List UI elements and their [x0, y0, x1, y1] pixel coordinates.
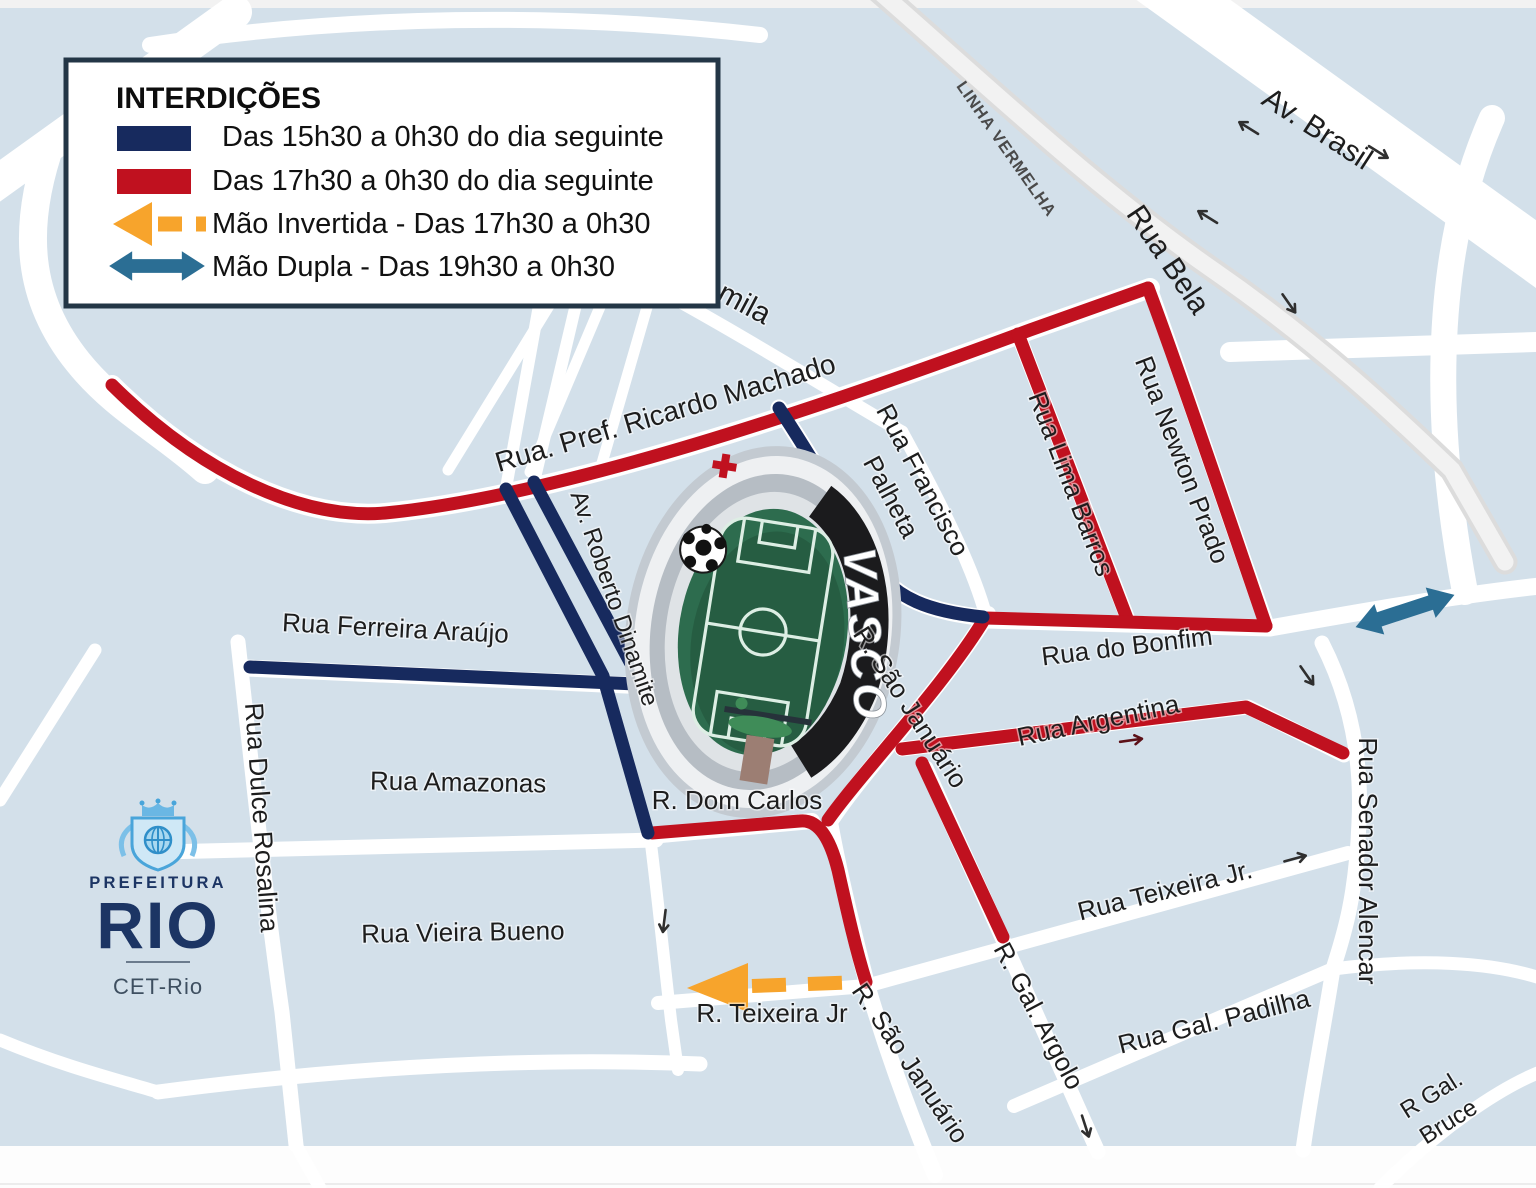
legend-item-label: Mão Invertida - Das 17h30 a 0h30	[212, 208, 651, 240]
street-label-vieira-bueno: Rua Vieira Bueno	[361, 915, 565, 949]
street-label-dom-carlos: R. Dom Carlos	[652, 785, 822, 815]
street-label-amazonas: Rua Amazonas	[370, 765, 547, 798]
road-segment	[1230, 342, 1536, 352]
traffic-closure-map-page: VASCO	[0, 0, 1536, 1188]
legend-item-label: Das 17h30 a 0h30 do dia seguinte	[212, 165, 654, 197]
legend: INTERDIÇÕES Das 15h30 a 0h30 do dia segu…	[66, 60, 718, 306]
street-label-teixeira-jr-small: R. Teixeira Jr	[696, 998, 848, 1028]
navy-bar-swatch	[117, 126, 191, 151]
street-label-senador-alencar: Rua Senador Alencar	[1353, 737, 1383, 985]
logo-cet-rio-text: CET-Rio	[113, 974, 203, 999]
closure-bonfim	[985, 618, 1266, 626]
legend-item-label: Das 15h30 a 0h30 do dia seguinte	[222, 121, 664, 153]
red-bar-swatch	[117, 169, 191, 194]
logo-rio-text: RIO	[96, 888, 219, 962]
map-canvas: VASCO	[0, 0, 1536, 1188]
legend-title: INTERDIÇÕES	[116, 81, 321, 115]
legend-item-label: Mão Dupla - Das 19h30 a 0h30	[212, 251, 615, 283]
